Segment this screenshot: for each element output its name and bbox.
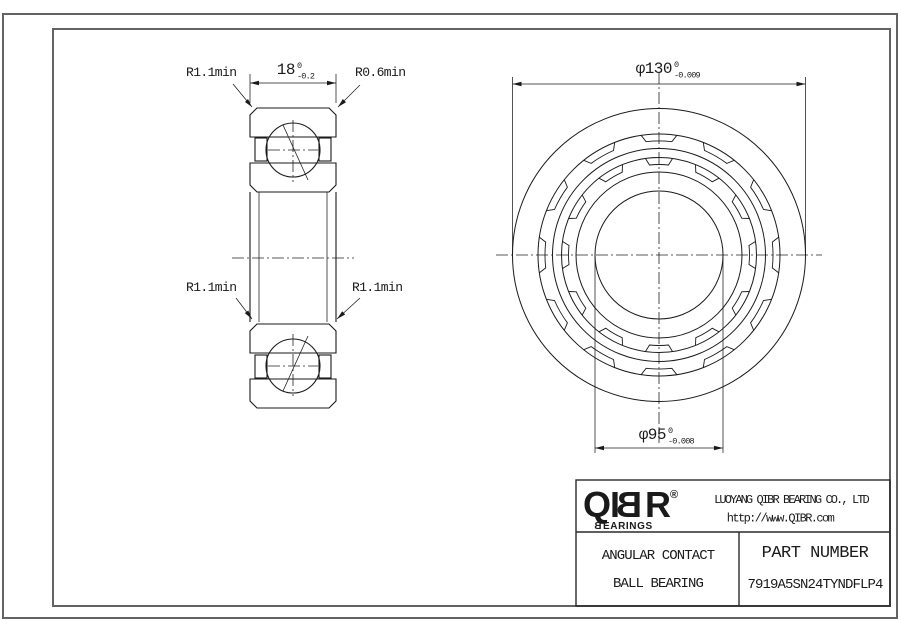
width-dimension-value: 18: [277, 61, 295, 79]
outer-diameter-tolerance-lower: -0.009: [674, 71, 701, 81]
width-tolerance-lower: -0.2: [297, 72, 315, 82]
outer-diameter-tolerance-upper: 0: [674, 60, 679, 70]
dimension-arrow-right: [797, 82, 806, 86]
radius-label-top-right: R0.6min: [355, 65, 405, 80]
part-number-value: 7919A5SN24TYNDFLP4: [747, 577, 883, 593]
width-dimension: 18 0 -0.2: [250, 61, 336, 103]
registered-trademark-icon: ®: [670, 489, 678, 501]
company-logo: Q I B R ® B EARINGS: [583, 484, 678, 532]
cage-pocket: [732, 292, 749, 316]
logo-letter-b-mirrored: B: [616, 484, 642, 525]
website-url: http://www.QIBR.com: [727, 512, 835, 526]
cage-pocket: [569, 292, 586, 316]
outer-diameter-value: φ130: [636, 60, 672, 78]
cage-pocket: [696, 165, 720, 182]
bore-diameter-tolerance-upper: 0: [668, 426, 673, 436]
dimension-arrow-left: [595, 446, 604, 450]
engineering-drawing-canvas: 18 0 -0.2 R1.1min R0.6min R1.1min R1.1mi…: [0, 0, 900, 636]
top-section: [250, 108, 336, 192]
width-tolerance-upper: 0: [297, 61, 302, 71]
cage-section-right-bottom: [319, 355, 331, 378]
bore-diameter-tolerance-lower: -0.008: [668, 437, 695, 447]
outer-border: [3, 14, 897, 618]
radius-label-top-left: R1.1min: [186, 65, 236, 80]
cage-section-left-bottom: [255, 355, 267, 378]
logo-letter-r: R: [645, 484, 671, 525]
radius-label-mid-right: R1.1min: [352, 280, 402, 295]
logo-sub-text: EARINGS: [603, 521, 653, 532]
dimension-arrow-right: [327, 81, 336, 85]
radius-label-mid-left: R1.1min: [186, 280, 236, 295]
contact-angle-line-top: [283, 125, 308, 180]
cage-pocket: [599, 165, 623, 182]
cage-pocket: [569, 195, 586, 219]
bore-diameter-value: φ95: [639, 426, 666, 444]
part-number-label: PART NUMBER: [762, 544, 869, 563]
cage-pocket: [599, 328, 623, 345]
leader-arrow: [245, 311, 252, 320]
cage-pocket: [732, 195, 749, 219]
cross-section-view: 18 0 -0.2 R1.1min R0.6min R1.1min R1.1mi…: [186, 61, 405, 408]
bottom-section: [250, 324, 336, 408]
dimension-arrow-left: [513, 82, 522, 86]
cage-section-right-top: [319, 138, 331, 161]
contact-angle-line-bottom: [283, 336, 308, 391]
product-type-line2: BALL BEARING: [613, 576, 704, 592]
dimension-arrow-right: [714, 446, 723, 450]
dimension-arrow-left: [250, 81, 259, 85]
cage-section-left-top: [255, 138, 267, 161]
title-block: Q I B R ® B EARINGS LUOYANG QIBR BEARING…: [576, 480, 890, 606]
cage-pocket: [696, 328, 720, 345]
product-type-line1: ANGULAR CONTACT: [602, 548, 715, 564]
logo-letter-q: Q: [583, 484, 611, 525]
front-view: φ130 0 -0.009 φ95 0 -0.008: [496, 60, 822, 453]
company-name: LUOYANG QIBR BEARING CO., LTD: [714, 493, 869, 507]
drawing-sheet: 18 0 -0.2 R1.1min R0.6min R1.1min R1.1mi…: [0, 0, 900, 636]
logo-sub-letter-b-mirrored: B: [594, 521, 602, 532]
